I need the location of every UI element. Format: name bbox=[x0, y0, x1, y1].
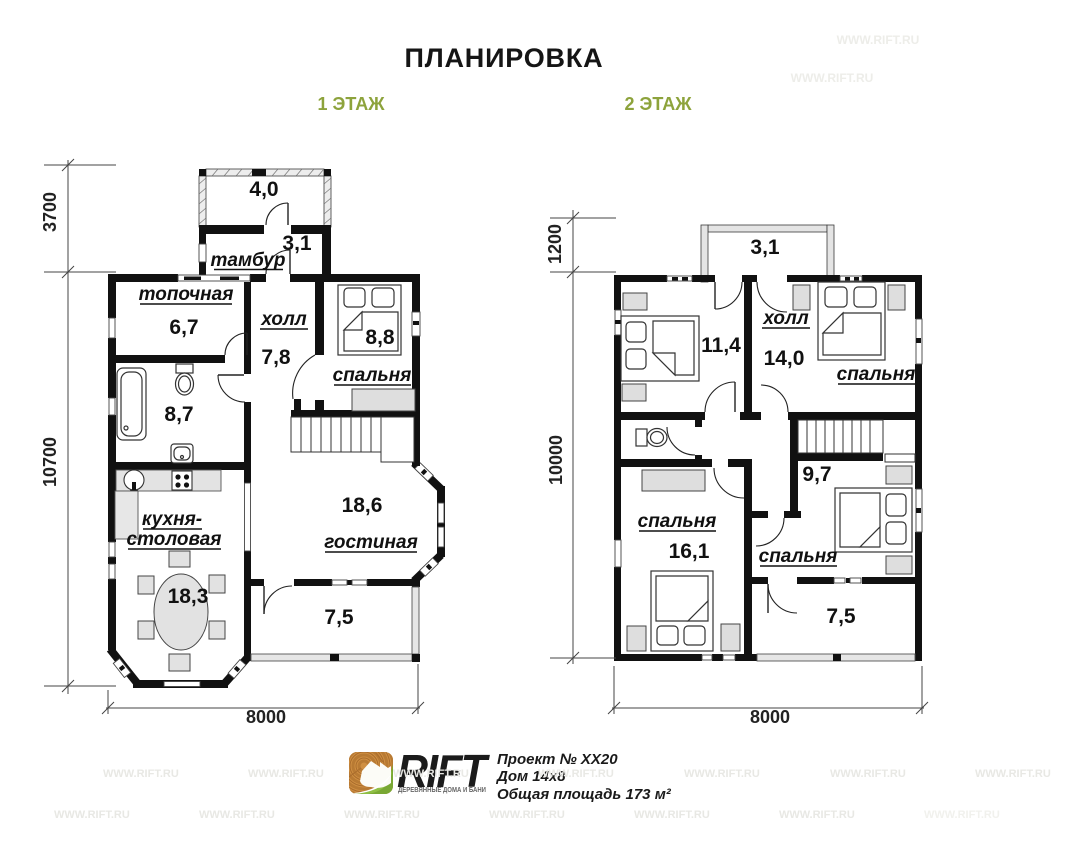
svg-text:4,0: 4,0 bbox=[249, 178, 278, 201]
svg-text:WWW.RIFT.RU: WWW.RIFT.RU bbox=[248, 768, 324, 780]
svg-text:спальня: спальня bbox=[333, 365, 412, 386]
svg-text:ДЕРЕВЯННЫЕ ДОМА И БАНИ: ДЕРЕВЯННЫЕ ДОМА И БАНИ bbox=[398, 785, 486, 794]
svg-text:холл: холл bbox=[762, 308, 809, 329]
svg-text:WWW.RIFT.RU: WWW.RIFT.RU bbox=[393, 768, 469, 780]
svg-text:спальня: спальня bbox=[837, 364, 916, 385]
svg-text:WWW.RIFT.RU: WWW.RIFT.RU bbox=[924, 809, 1000, 821]
svg-text:WWW.RIFT.RU: WWW.RIFT.RU bbox=[489, 809, 565, 821]
svg-text:8000: 8000 bbox=[750, 707, 790, 727]
svg-text:WWW.RIFT.RU: WWW.RIFT.RU bbox=[975, 768, 1051, 780]
svg-text:8,7: 8,7 bbox=[164, 403, 193, 426]
svg-text:WWW.RIFT.RU: WWW.RIFT.RU bbox=[830, 768, 906, 780]
svg-text:3,1: 3,1 bbox=[282, 232, 312, 255]
svg-text:спальня: спальня bbox=[638, 511, 717, 532]
svg-text:спальня: спальня bbox=[759, 546, 838, 567]
svg-text:Проект № ХХ20: Проект № ХХ20 bbox=[497, 751, 618, 768]
svg-text:тамбур: тамбур bbox=[211, 250, 286, 271]
svg-text:WWW.RIFT.RU: WWW.RIFT.RU bbox=[538, 768, 614, 780]
svg-text:холл: холл bbox=[260, 309, 307, 330]
svg-text:7,8: 7,8 bbox=[261, 346, 291, 369]
svg-text:WWW.RIFT.RU: WWW.RIFT.RU bbox=[199, 809, 275, 821]
svg-text:7,5: 7,5 bbox=[826, 605, 856, 628]
svg-text:18,6: 18,6 bbox=[342, 494, 383, 517]
svg-text:10000: 10000 bbox=[546, 435, 566, 485]
svg-text:8000: 8000 bbox=[246, 707, 286, 727]
svg-text:1200: 1200 bbox=[545, 224, 565, 264]
svg-text:кухня-: кухня- bbox=[142, 509, 202, 530]
svg-text:3,1: 3,1 bbox=[750, 236, 780, 259]
svg-text:8,8: 8,8 bbox=[365, 326, 395, 349]
svg-text:WWW.RIFT.RU: WWW.RIFT.RU bbox=[344, 809, 420, 821]
svg-text:WWW.RIFT.RU: WWW.RIFT.RU bbox=[791, 71, 874, 85]
svg-text:WWW.RIFT.RU: WWW.RIFT.RU bbox=[837, 33, 920, 47]
svg-text:Общая площадь 173 м²: Общая площадь 173 м² bbox=[497, 786, 672, 803]
svg-text:7,5: 7,5 bbox=[324, 606, 354, 629]
svg-text:16,1: 16,1 bbox=[669, 540, 710, 563]
svg-text:14,0: 14,0 bbox=[764, 347, 805, 370]
svg-text:18,3: 18,3 bbox=[168, 585, 209, 608]
svg-text:топочная: топочная bbox=[139, 284, 234, 305]
svg-text:столовая: столовая bbox=[127, 529, 222, 550]
svg-text:9,7: 9,7 bbox=[802, 463, 831, 486]
svg-text:2 ЭТАЖ: 2 ЭТАЖ bbox=[625, 94, 693, 114]
svg-text:3700: 3700 bbox=[40, 192, 60, 232]
svg-text:WWW.RIFT.RU: WWW.RIFT.RU bbox=[684, 768, 760, 780]
svg-text:6,7: 6,7 bbox=[169, 316, 198, 339]
svg-text:1 ЭТАЖ: 1 ЭТАЖ bbox=[318, 94, 386, 114]
svg-text:WWW.RIFT.RU: WWW.RIFT.RU bbox=[779, 809, 855, 821]
svg-text:WWW.RIFT.RU: WWW.RIFT.RU bbox=[103, 768, 179, 780]
svg-text:гостиная: гостиная bbox=[324, 532, 418, 553]
svg-text:WWW.RIFT.RU: WWW.RIFT.RU bbox=[54, 809, 130, 821]
svg-text:WWW.RIFT.RU: WWW.RIFT.RU bbox=[634, 809, 710, 821]
svg-text:ПЛАНИРОВКА: ПЛАНИРОВКА bbox=[405, 43, 604, 73]
svg-text:11,4: 11,4 bbox=[701, 334, 741, 357]
svg-text:10700: 10700 bbox=[40, 437, 60, 487]
